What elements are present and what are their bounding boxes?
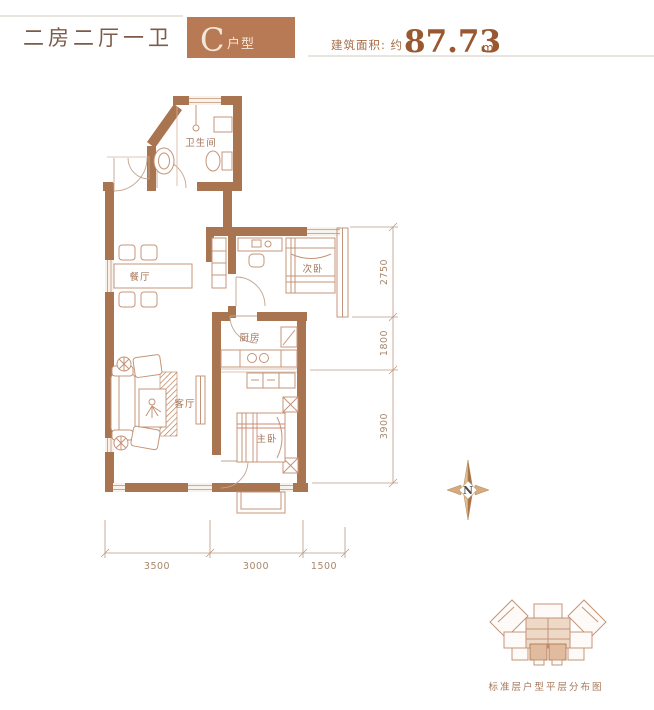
- dim-1800: 1800: [379, 330, 390, 356]
- label-bathroom: 卫生间: [185, 137, 217, 149]
- dining-table: [114, 264, 192, 288]
- sofa: [111, 374, 135, 432]
- dimension-bottom: 3500 3000 1500: [101, 520, 349, 572]
- label-kitchen: 厨房: [239, 332, 260, 344]
- compass-north-label: N: [463, 484, 473, 497]
- dim-3900: 3900: [379, 413, 390, 439]
- kitchen-counter: [221, 350, 281, 367]
- bay-window: [337, 228, 348, 317]
- armchair: [133, 354, 163, 378]
- floorplan-canvas: 二房二厅一卫 C 户型 建筑面积: 约 87.73 m²: [0, 0, 654, 710]
- map-caption: 标准层户型平层分布图: [488, 681, 603, 693]
- label-living: 客厅: [174, 398, 195, 410]
- label-second-bedroom: 次卧: [302, 263, 323, 275]
- floorplan-page: 二房二厅一卫 C 户型 建筑面积: 约 87.73 m²: [0, 0, 654, 710]
- toilet-icon: [206, 151, 220, 171]
- area-prefix: 建筑面积: 约: [331, 38, 403, 52]
- unit-type-suffix: 户型: [227, 36, 255, 52]
- dim-1500: 1500: [311, 561, 337, 572]
- hall-cabinet: [212, 238, 226, 288]
- floor-distribution-map: [490, 600, 606, 665]
- dining-furniture: [114, 245, 192, 307]
- label-dining: 餐厅: [129, 271, 150, 283]
- bottom-bay-window: [237, 492, 285, 513]
- dim-3500: 3500: [144, 561, 170, 572]
- dim-2750: 2750: [379, 259, 390, 285]
- master-bedroom-furniture: [237, 373, 298, 473]
- area-unit: m²: [482, 41, 499, 55]
- desk-chair: [249, 254, 264, 267]
- label-master-bedroom: 主卧: [256, 433, 277, 445]
- page-title: 二房二厅一卫: [23, 26, 173, 50]
- dim-3000: 3000: [243, 561, 269, 572]
- north-compass-icon: N: [447, 460, 489, 520]
- unit-type-letter: C: [200, 21, 224, 59]
- armchair: [130, 426, 160, 450]
